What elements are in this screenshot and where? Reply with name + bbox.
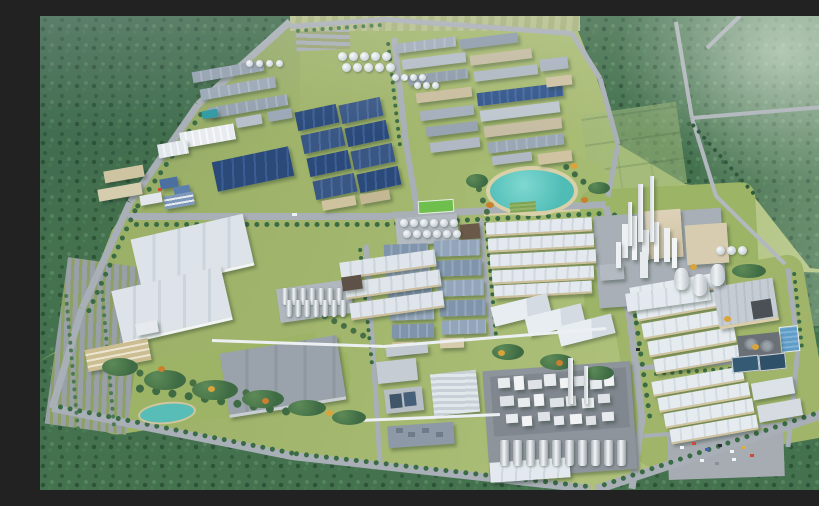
process-unit-3 bbox=[528, 380, 543, 390]
warehouse-brown-2 bbox=[341, 275, 363, 292]
grove-blob-7 bbox=[492, 344, 524, 360]
sports-field bbox=[418, 199, 455, 214]
grove-blob-5 bbox=[288, 400, 326, 416]
process-unit-9 bbox=[500, 396, 515, 407]
plant-silo-row-8 bbox=[591, 440, 600, 466]
cement-tower-6 bbox=[640, 252, 648, 278]
tanks-midfarm-r1-5 bbox=[440, 219, 448, 227]
plant-silo-row-7 bbox=[578, 440, 587, 466]
plant-silo-row-6 bbox=[565, 440, 574, 466]
car-lot-8 bbox=[715, 462, 719, 465]
grove-blob-12 bbox=[732, 264, 766, 278]
warehouse-f-right-3 bbox=[438, 279, 485, 297]
accent-tree-11 bbox=[581, 197, 588, 203]
cement-mill-beige-2 bbox=[685, 223, 730, 266]
process-unit-17 bbox=[522, 416, 533, 427]
accent-tree-10 bbox=[570, 163, 578, 169]
process-unit-7 bbox=[590, 380, 603, 390]
cement-tower-2 bbox=[632, 216, 637, 260]
process-unit-4 bbox=[544, 374, 557, 387]
grove-blob-2 bbox=[144, 370, 186, 390]
tanks-midfarm-r1-1 bbox=[400, 219, 408, 227]
hvac-unit-4 bbox=[436, 432, 443, 437]
plant-silo-row-10 bbox=[617, 440, 626, 466]
industrial-park-aerial-render bbox=[40, 16, 819, 490]
car-lot-3 bbox=[705, 448, 709, 451]
car-lot-4 bbox=[718, 444, 722, 447]
car-road-2 bbox=[292, 213, 297, 216]
car-road-4 bbox=[636, 348, 640, 351]
factory-c-13 bbox=[430, 137, 481, 153]
cement-tower-5 bbox=[664, 228, 670, 262]
car-lot-10 bbox=[750, 454, 754, 457]
navy-factory-5 bbox=[306, 150, 351, 177]
warehouse-f-left-5 bbox=[392, 323, 434, 338]
navy-factory-8 bbox=[356, 166, 401, 193]
tanks-midfarm-r2-1 bbox=[403, 230, 411, 238]
accent-tree-3 bbox=[262, 398, 269, 404]
road-mid-h1 bbox=[128, 213, 392, 220]
grove-blob-1 bbox=[102, 358, 138, 376]
plant-silo-row-2 bbox=[513, 440, 522, 466]
hvac-unit-2 bbox=[408, 432, 415, 437]
utility-basin-cell-1 bbox=[389, 393, 402, 408]
cement-tower-4 bbox=[654, 222, 659, 262]
car-road-1 bbox=[158, 188, 162, 191]
treeline-mid-h1 bbox=[134, 222, 390, 227]
silo-row-center-2-2 bbox=[295, 300, 301, 317]
grove-blob-6 bbox=[332, 410, 366, 425]
process-unit-11 bbox=[534, 394, 545, 407]
grove-blob-3 bbox=[192, 380, 238, 400]
process-unit-12 bbox=[550, 398, 565, 408]
silo-row-center-2-3 bbox=[304, 300, 310, 317]
hvac-unit-3 bbox=[422, 428, 429, 433]
car-lot-7 bbox=[700, 459, 704, 462]
car-lot-6 bbox=[742, 446, 746, 449]
tanks-midfarm-r1-4 bbox=[430, 219, 438, 227]
warehouse-f-right-2 bbox=[436, 259, 483, 277]
settling-basin-1 bbox=[731, 355, 760, 374]
clarifier-2 bbox=[760, 340, 774, 352]
render-scene bbox=[40, 16, 819, 490]
cement-tower-7 bbox=[672, 238, 677, 268]
tanks-midfarm-r2-6 bbox=[453, 230, 461, 238]
hvac-unit-1 bbox=[396, 428, 403, 433]
warehouse-f-right-1 bbox=[434, 239, 481, 257]
car-lot-2 bbox=[692, 442, 696, 445]
tanks-midfarm-r2-4 bbox=[433, 230, 441, 238]
accent-tree-5 bbox=[498, 350, 505, 356]
car-lot-1 bbox=[680, 446, 684, 449]
process-unit-10 bbox=[518, 398, 531, 408]
process-unit-19 bbox=[554, 416, 565, 426]
process-unit-1 bbox=[498, 378, 511, 389]
process-unit-18 bbox=[538, 412, 551, 422]
tanks-midfarm-r2-3 bbox=[423, 230, 431, 238]
pipe-rack-lower bbox=[360, 413, 500, 422]
car-lot-5 bbox=[730, 450, 734, 453]
plant-silo-row-9 bbox=[604, 440, 613, 466]
accent-tree-7 bbox=[724, 316, 731, 322]
utility-bldg-2 bbox=[376, 358, 418, 384]
navy-factory-6 bbox=[350, 143, 395, 170]
plant-stack-1 bbox=[568, 358, 573, 404]
cooling-tower-2 bbox=[692, 274, 707, 296]
accent-tree-12 bbox=[690, 264, 697, 270]
factory-c-14 bbox=[488, 133, 565, 153]
process-unit-2 bbox=[514, 376, 525, 391]
plant-silo-row-1 bbox=[500, 440, 509, 466]
warehouse-f-right-5 bbox=[442, 319, 486, 335]
grove-blob-9 bbox=[584, 366, 614, 380]
plant-stack-2 bbox=[584, 366, 588, 404]
warehouse-dark-brown bbox=[459, 223, 480, 240]
plant-silo-row-3 bbox=[526, 440, 535, 466]
cement-stack-1 bbox=[638, 184, 643, 242]
cement-silos-2 bbox=[727, 246, 736, 255]
cement-stack-2 bbox=[650, 176, 654, 242]
process-unit-16 bbox=[506, 414, 519, 424]
plant-silo-row-5 bbox=[552, 440, 561, 466]
warehouse-f-right-4 bbox=[440, 299, 487, 317]
paneled-bldg-dark-roof bbox=[751, 299, 774, 320]
cement-silos-1 bbox=[716, 246, 725, 255]
process-unit-20 bbox=[570, 414, 583, 425]
tanks-midfarm-r2-2 bbox=[413, 230, 421, 238]
atmosphere-top bbox=[40, 16, 819, 136]
silo-row-center-2-7 bbox=[340, 300, 346, 317]
tanks-midfarm-r2-5 bbox=[443, 230, 451, 238]
tanks-midfarm-r1-3 bbox=[420, 219, 428, 227]
accent-tree-4 bbox=[326, 410, 333, 416]
warehouse-striped-long bbox=[430, 370, 480, 417]
accent-tree-2 bbox=[208, 386, 215, 392]
plant-silo-row-4 bbox=[539, 440, 548, 466]
process-unit-15 bbox=[598, 394, 611, 404]
orchard-rows bbox=[510, 201, 537, 213]
water-grid-basin bbox=[779, 325, 801, 353]
accent-tree-1 bbox=[158, 366, 165, 372]
tanks-midfarm-r1-6 bbox=[450, 219, 458, 227]
accent-tree-6 bbox=[556, 360, 563, 366]
car-lot-9 bbox=[732, 458, 736, 461]
silo-row-center-2-6 bbox=[331, 300, 337, 317]
settling-basin-2 bbox=[758, 353, 787, 372]
cooling-tower-3 bbox=[710, 264, 725, 286]
cement-silos-3 bbox=[738, 246, 747, 255]
flat-roof-hvac bbox=[387, 422, 454, 449]
cement-tower-8 bbox=[616, 242, 621, 268]
silo-row-center-2-1 bbox=[286, 300, 292, 317]
cooling-tower-1 bbox=[674, 268, 689, 290]
process-unit-22 bbox=[602, 412, 615, 422]
grove-blob-11 bbox=[588, 182, 610, 194]
utility-basin-cell-2 bbox=[403, 391, 416, 406]
accent-tree-8 bbox=[752, 344, 759, 350]
tanks-midfarm-r1-2 bbox=[410, 219, 418, 227]
silo-row-center-2-5 bbox=[322, 300, 328, 317]
cement-stack-3 bbox=[628, 202, 632, 246]
grove-blob-10 bbox=[466, 174, 488, 188]
process-unit-21 bbox=[586, 416, 597, 426]
accent-tree-9 bbox=[486, 202, 494, 208]
silo-row-center-2-4 bbox=[313, 300, 319, 317]
road-v-central bbox=[364, 244, 383, 461]
